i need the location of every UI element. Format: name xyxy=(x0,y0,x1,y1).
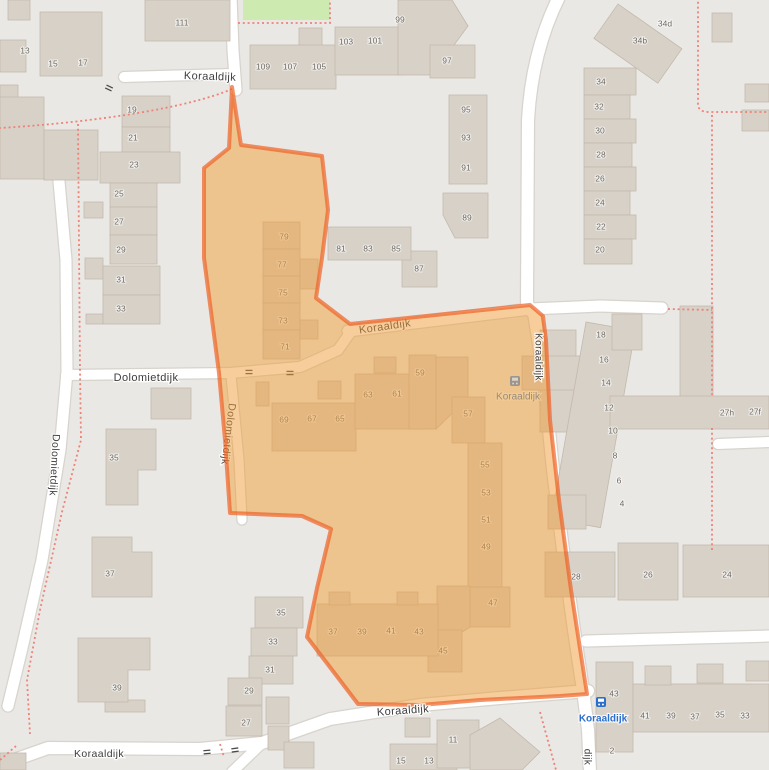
house-number: 85 xyxy=(391,243,401,253)
house-number: 6 xyxy=(617,475,622,485)
bus-stop-icon xyxy=(596,697,606,707)
building xyxy=(84,202,103,218)
house-number: 4 xyxy=(620,498,625,508)
house-number: 13 xyxy=(424,755,434,765)
house-number: 23 xyxy=(129,159,139,169)
house-number: 19 xyxy=(127,104,137,114)
house-number: 8 xyxy=(613,450,618,460)
house-number: 93 xyxy=(461,132,471,142)
building xyxy=(85,258,103,279)
building xyxy=(335,27,401,75)
building xyxy=(0,97,44,179)
house-number: 16 xyxy=(599,354,609,364)
house-number: 11 xyxy=(449,734,458,744)
building xyxy=(103,295,160,324)
building xyxy=(745,84,769,102)
bus-window xyxy=(598,699,604,702)
house-number: 24 xyxy=(595,197,605,207)
building xyxy=(633,684,769,732)
building xyxy=(584,119,636,143)
building xyxy=(430,45,475,78)
house-number: 91 xyxy=(461,162,471,172)
house-number: 26 xyxy=(643,569,653,579)
house-number: 34d xyxy=(658,18,672,28)
house-number: 21 xyxy=(128,132,138,142)
house-number: 30 xyxy=(595,125,605,135)
building xyxy=(584,239,632,264)
house-number: 29 xyxy=(244,685,254,695)
house-number: 37 xyxy=(690,711,700,721)
green-area xyxy=(243,0,330,20)
map-viewport[interactable]: 1315171111091071051031019997959391898781… xyxy=(0,0,769,770)
house-number: 24 xyxy=(722,569,732,579)
house-number: 39 xyxy=(112,682,122,692)
building xyxy=(103,266,160,295)
building xyxy=(151,388,191,419)
house-number: 27 xyxy=(241,717,251,727)
house-number: 81 xyxy=(336,243,346,253)
traffic-calming-line xyxy=(204,753,211,754)
street-name-label: Dolomietdijk xyxy=(114,372,179,384)
street-name-label: Koraaldijk xyxy=(532,333,543,382)
building xyxy=(610,396,769,429)
house-number: 14 xyxy=(601,377,611,387)
building xyxy=(584,143,632,167)
house-number: 29 xyxy=(116,244,126,254)
house-number: 101 xyxy=(368,35,382,45)
house-number: 20 xyxy=(595,244,605,254)
house-number: 2 xyxy=(610,745,615,755)
house-number: 33 xyxy=(268,636,278,646)
bus-stop-label: Koraaldijk xyxy=(579,714,628,725)
house-number: 99 xyxy=(395,14,405,24)
building xyxy=(584,215,636,239)
house-number: 103 xyxy=(339,36,353,46)
bus-wheel xyxy=(516,383,518,385)
bus-stop xyxy=(596,697,606,707)
house-number: 15 xyxy=(48,58,58,68)
house-number: 13 xyxy=(20,45,30,55)
house-number: 43 xyxy=(609,688,619,698)
bus-window xyxy=(512,378,518,381)
house-number: 87 xyxy=(414,263,424,273)
building xyxy=(746,661,769,681)
building xyxy=(742,110,769,131)
building xyxy=(266,697,289,724)
building xyxy=(712,13,732,42)
building xyxy=(612,314,642,350)
house-number: 26 xyxy=(595,173,605,183)
building xyxy=(645,666,671,685)
house-number: 105 xyxy=(312,61,326,71)
building xyxy=(86,314,103,324)
building xyxy=(697,664,723,683)
house-number: 107 xyxy=(283,61,297,71)
bus-stop-label: Koraaldijk xyxy=(496,392,541,403)
house-number: 27h xyxy=(720,407,734,417)
house-number: 31 xyxy=(116,274,126,284)
house-number: 33 xyxy=(740,710,750,720)
building xyxy=(584,95,630,119)
road xyxy=(718,442,769,444)
house-number: 10 xyxy=(608,425,618,435)
map-canvas[interactable]: 1315171111091071051031019997959391898781… xyxy=(0,0,769,770)
street-name-label: Koraaldijk xyxy=(74,748,124,760)
building xyxy=(584,68,636,95)
house-number: 109 xyxy=(256,61,270,71)
building xyxy=(299,28,322,46)
house-number: 97 xyxy=(442,55,452,65)
house-number: 95 xyxy=(461,104,471,114)
street-name-label: Koraaldijk xyxy=(184,70,237,84)
house-number: 27 xyxy=(114,216,124,226)
road xyxy=(586,636,769,641)
house-number: 27f xyxy=(749,406,761,416)
traffic-calming-line xyxy=(203,750,210,751)
house-number: 25 xyxy=(114,188,124,198)
building xyxy=(100,152,180,183)
bus-wheel xyxy=(598,704,600,706)
house-number: 39 xyxy=(666,710,676,720)
bus-stop-icon xyxy=(510,376,520,386)
house-number: 22 xyxy=(596,221,606,231)
house-number: 31 xyxy=(265,664,275,674)
building xyxy=(8,0,30,20)
house-number: 41 xyxy=(640,710,650,720)
building xyxy=(405,718,430,737)
house-number: 12 xyxy=(604,402,614,412)
house-number: 35 xyxy=(715,709,725,719)
bus-stop xyxy=(510,376,520,386)
building xyxy=(584,191,630,215)
house-number: 89 xyxy=(462,212,472,222)
house-number: 35 xyxy=(109,452,119,462)
house-number: 37 xyxy=(105,568,115,578)
house-number: 32 xyxy=(594,101,604,111)
street-name-label: dijk xyxy=(581,749,592,766)
bus-wheel xyxy=(512,383,514,385)
building xyxy=(584,167,636,191)
house-number: 33 xyxy=(116,303,126,313)
house-number: 28 xyxy=(571,571,581,581)
house-number: 34b xyxy=(633,35,647,45)
house-number: 111 xyxy=(176,17,189,27)
bus-wheel xyxy=(602,704,604,706)
house-number: 83 xyxy=(363,243,373,253)
building xyxy=(680,306,713,398)
house-number: 35 xyxy=(276,607,286,617)
house-number: 15 xyxy=(396,755,406,765)
house-number: 18 xyxy=(596,329,606,339)
house-number: 28 xyxy=(596,149,606,159)
house-number: 17 xyxy=(78,57,88,67)
building xyxy=(284,742,314,768)
house-number: 34 xyxy=(596,76,606,86)
building xyxy=(44,130,98,180)
